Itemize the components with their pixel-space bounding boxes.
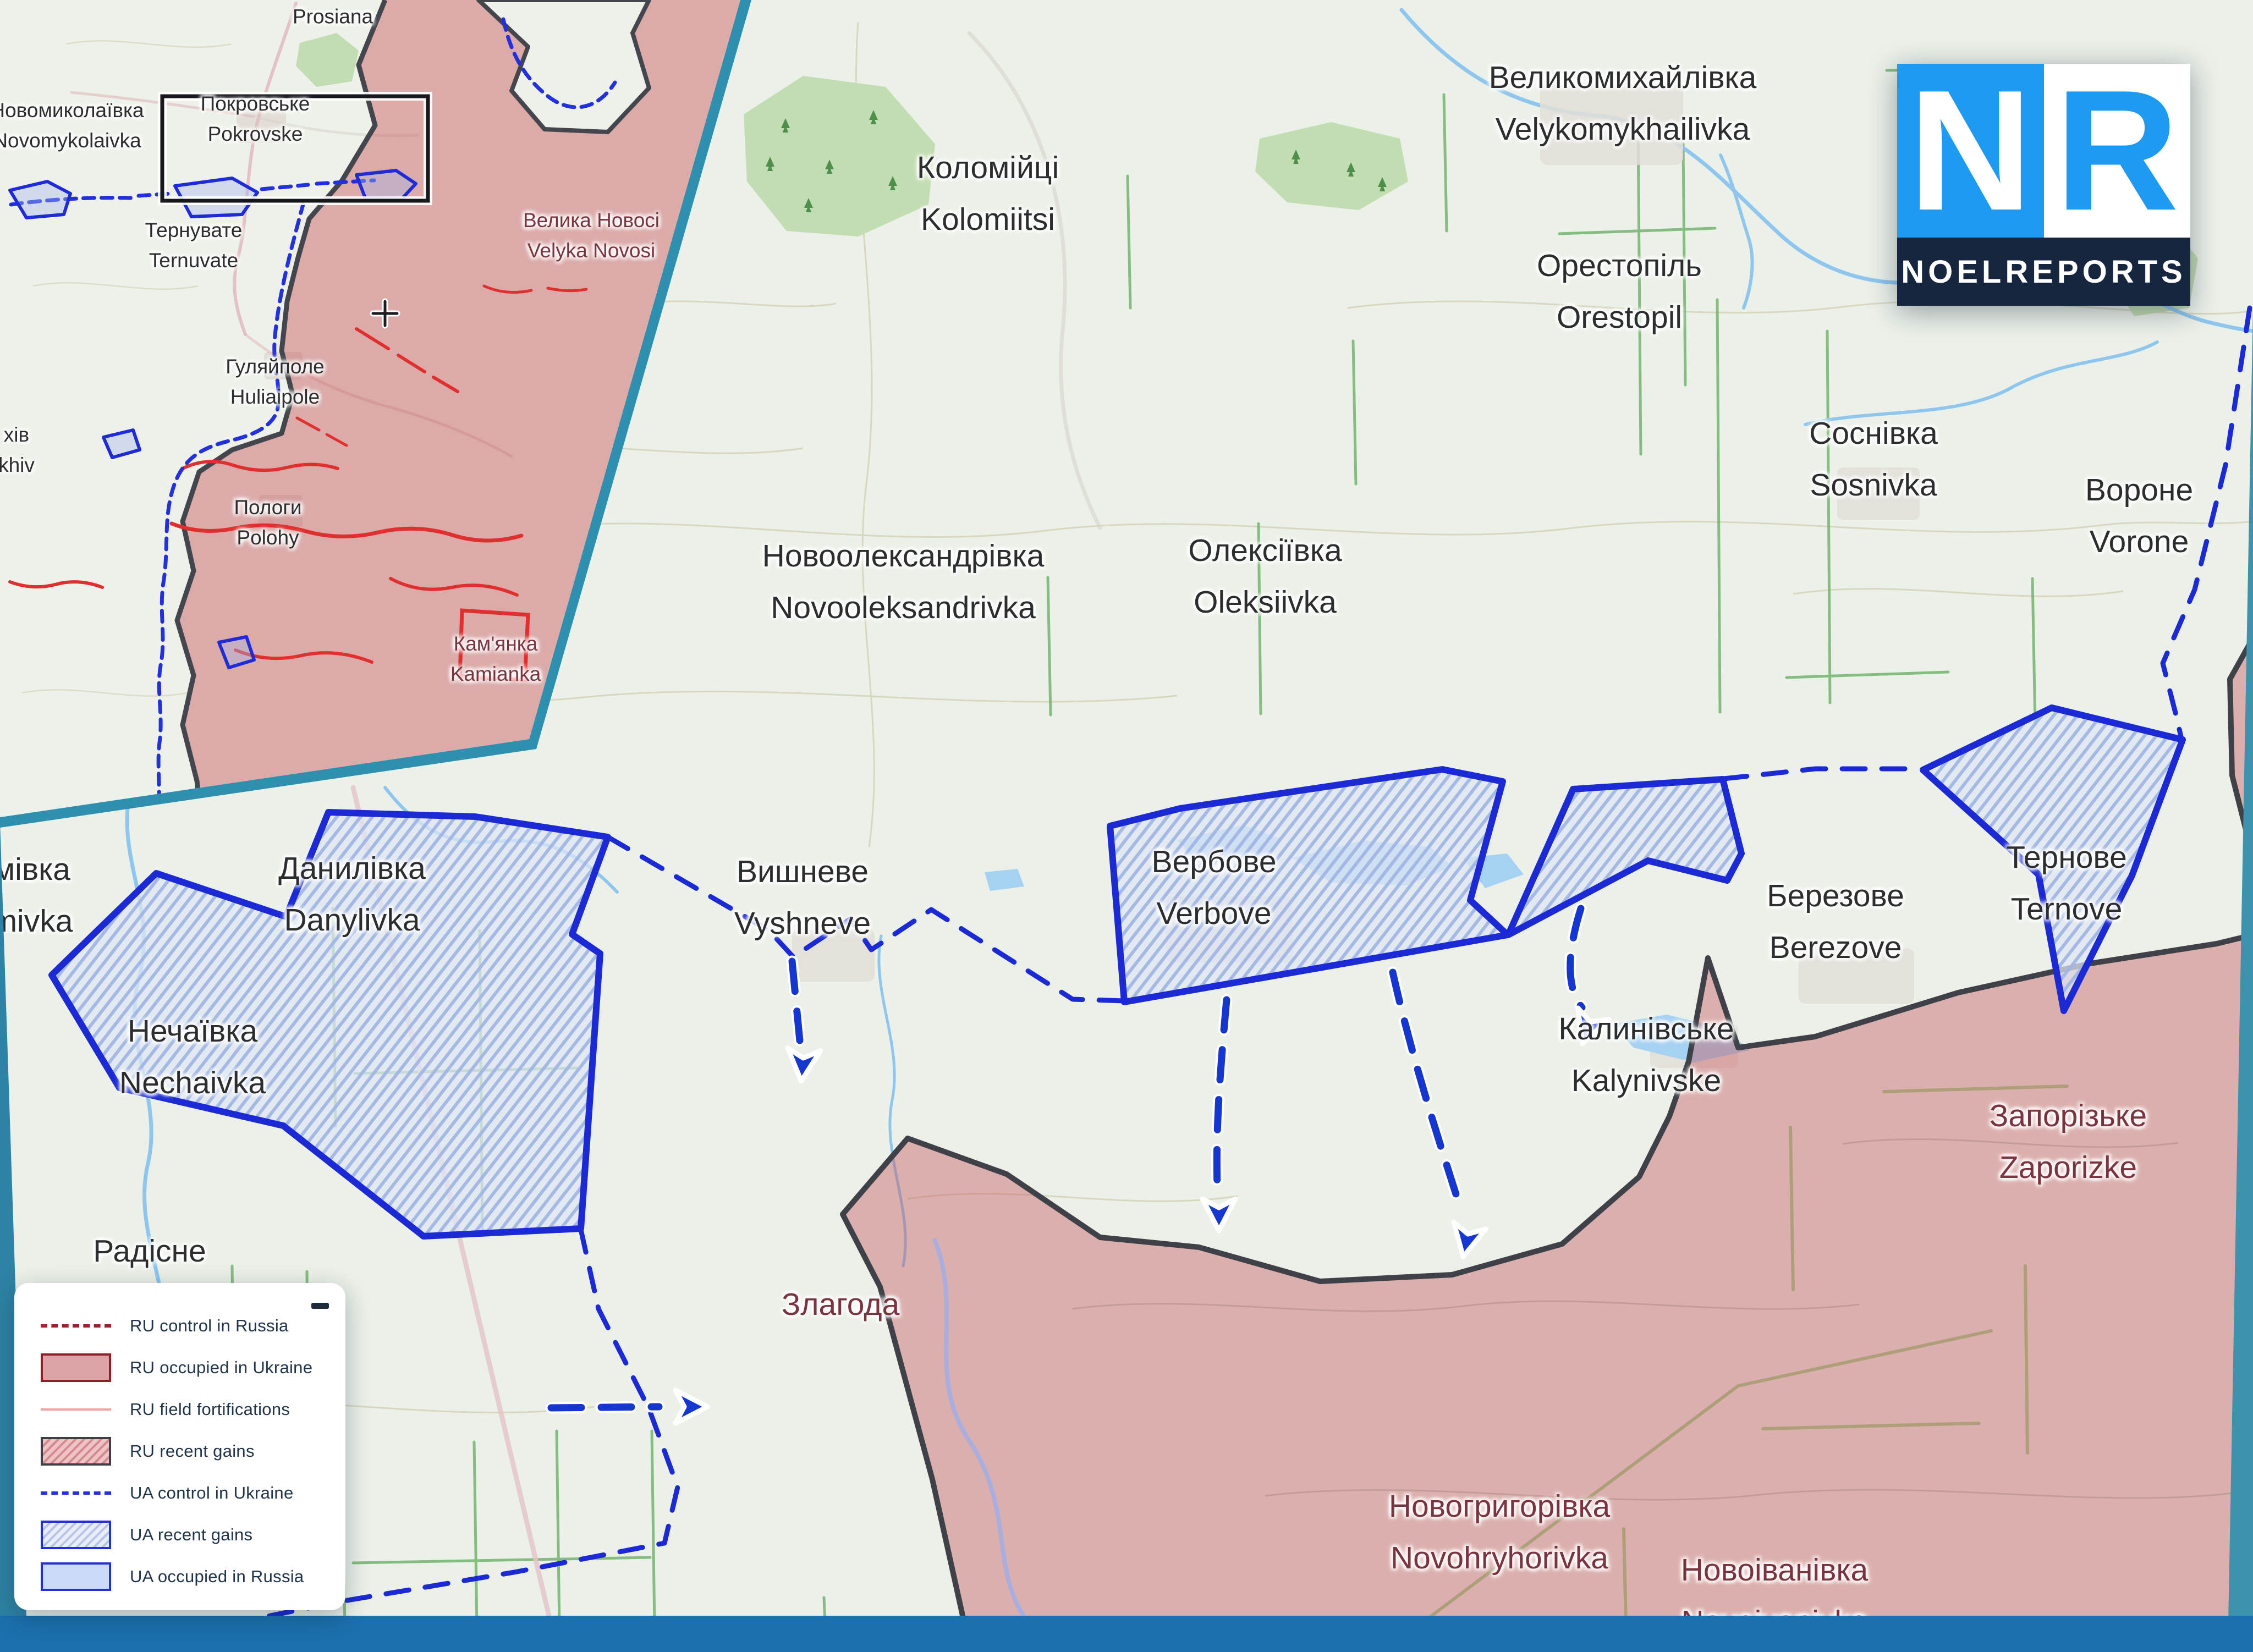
legend-minimize-button[interactable]: [305, 1297, 329, 1314]
arrowhead-vyshneve: [785, 1048, 821, 1082]
map-label-ternuvate: ТернуватеTernuvate: [145, 215, 243, 276]
legend-label: UA recent gains: [130, 1525, 252, 1545]
map-label-orestopil: ОрестопільOrestopil: [1537, 240, 1702, 343]
legend-item-ua-recent-gains: UA recent gains: [41, 1519, 329, 1550]
ru-zone-river: [934, 1238, 1024, 1617]
arrowhead-radisne-east: [675, 1390, 707, 1423]
map-label-berezove: БерезовеBerezove: [1767, 870, 1904, 973]
legend-swatch-ua-gains: [41, 1521, 111, 1549]
map-stage: КоломійціKolomiitsiВеликомихайлівкаVelyk…: [0, 0, 2253, 1652]
map-label-nechaivka: НечаївкаNechaivka: [119, 1005, 266, 1109]
legend-item-ru-control-russia: RU control in Russia: [41, 1310, 329, 1341]
map-label-novooleksandrivka: НовоолександрівкаNovooleksandrivka: [762, 530, 1045, 634]
map-label-kolomiitsi: КоломійціKolomiitsi: [917, 142, 1059, 245]
map-label-kamianka: Кам'янкаKamianka: [450, 629, 541, 689]
legend-item-ru-occupied-ukraine: RU occupied in Ukraine: [41, 1352, 329, 1383]
legend-swatch-ru-fortifications-line: [41, 1408, 111, 1411]
legend-label: RU field fortifications: [130, 1400, 290, 1419]
legend-swatch-ru-control-line: [41, 1324, 111, 1328]
minus-icon: [311, 1303, 329, 1309]
legend-item-ua-control-ukraine: UA control in Ukraine: [41, 1478, 329, 1508]
arrowhead-verbove-west: [1202, 1199, 1235, 1231]
legend-swatch-ua-control-line: [41, 1491, 111, 1495]
ua-gain-east-of-verbove: [1508, 779, 1741, 935]
legend-item-ru-field-fortifications: RU field fortifications: [41, 1394, 329, 1425]
map-label-velyka-novosilka: Велика НовосіVelyka Novosi: [523, 205, 660, 266]
advance-arrows: [551, 908, 1609, 1423]
legend-label: RU recent gains: [130, 1441, 255, 1461]
map-label-mivka-cut: мівкаmivka: [0, 844, 73, 947]
map-label-kalynivske: КалинівськеKalynivske: [1558, 1003, 1734, 1106]
map-label-novohryhorivka: НовогригорівкаNovohryhorivka: [1389, 1480, 1610, 1584]
map-label-polohy: ПологиPolohy: [234, 492, 301, 553]
legend-label: RU control in Russia: [130, 1316, 289, 1336]
map-label-prosiana: Prosiana: [293, 2, 373, 32]
arrowhead-verbove-east: [1447, 1222, 1486, 1260]
map-label-verbove: ВербовеVerbove: [1151, 836, 1276, 939]
logo-letter-n: N: [1897, 64, 2044, 238]
ru-occupied-east-sliver: [2230, 638, 2253, 858]
map-label-zaporizke: ЗапорізькеZaporizke: [1990, 1090, 2147, 1193]
legend-label: UA control in Ukraine: [130, 1483, 294, 1503]
legend-label: RU occupied in Ukraine: [130, 1358, 312, 1378]
legend-swatch-ua-occupied: [41, 1562, 111, 1591]
map-label-zlahoda: Злагода: [782, 1279, 899, 1330]
map-label-velykomykhailivka: ВеликомихайлівкаVelykomykhailivka: [1489, 52, 1757, 155]
map-label-danylivka: ДанилівкаDanylivka: [278, 842, 426, 946]
legend-item-ua-occupied-russia: UA occupied in Russia: [41, 1561, 329, 1592]
map-label-novoivanivka: НовоіванівкаNovoivanivka: [1681, 1544, 1869, 1648]
legend-item-ru-recent-gains: RU recent gains: [41, 1436, 329, 1467]
map-label-pokrovske: ПокровськеPokrovske: [201, 89, 310, 149]
map-label-novomykolaivka: НовомиколаївкаNovomykolaivka: [0, 95, 144, 156]
legend-swatch-ru-gains: [41, 1437, 111, 1466]
map-label-oleksiivka: ОлексіївкаOleksiivka: [1188, 525, 1342, 628]
map-label-sosnivka: СоснівкаSosnivka: [1809, 408, 1938, 511]
map-label-khiv-cut: хівkhiv: [0, 420, 35, 480]
map-label-vyshneve: ВишневеVyshneve: [734, 846, 871, 949]
legend-label: UA occupied in Russia: [130, 1567, 304, 1587]
noelreports-logo: N R NOELREPORTS: [1897, 64, 2190, 306]
map-label-vorone: ВоронеVorone: [2085, 464, 2193, 568]
map-label-huliaipole: ГуляйполеHuliaipole: [226, 351, 325, 412]
legend-panel: RU control in Russia RU occupied in Ukra…: [14, 1283, 345, 1610]
legend-swatch-ru-occupied: [41, 1353, 111, 1382]
map-label-ternove: ТерновеTernove: [2006, 831, 2127, 935]
logo-wordmark: NOELREPORTS: [1897, 238, 2190, 306]
logo-letter-r: R: [2044, 64, 2191, 238]
